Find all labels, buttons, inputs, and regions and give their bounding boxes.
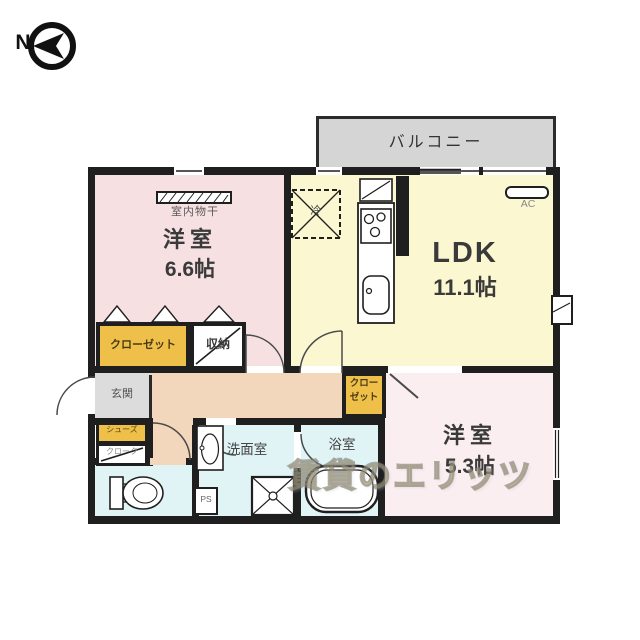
washroom-label: 洗面室 (206, 443, 288, 458)
wall (88, 516, 560, 524)
ac-label: AC (510, 199, 546, 211)
ldk-small-window-icon (551, 295, 573, 325)
entrance-label: 玄関 (96, 388, 148, 400)
bedroom2-name-label: 洋室 (395, 424, 545, 448)
closet-label: クローゼット (99, 339, 187, 351)
watermark: 賃貸のエリッツ (288, 458, 578, 494)
refrigerator-label: 冷 (306, 205, 326, 217)
closet2-label-line2: ゼット (344, 393, 384, 403)
shoes-closet-label-line1: シューズ (97, 426, 147, 435)
toilet-floor (95, 460, 193, 518)
balcony-sliding-window (420, 167, 546, 175)
entrance-step-line (149, 375, 152, 418)
ldk-doorway (300, 366, 342, 373)
ldk-name-label: LDK (380, 238, 550, 270)
bedroom2-doorway (388, 366, 462, 373)
bedroom1-window (174, 167, 204, 175)
pipe-space-label: PS (195, 495, 217, 504)
drying-pole-icon (156, 191, 232, 204)
toilet-doorway (150, 458, 186, 465)
wall (88, 167, 95, 524)
closet2-label-line1: クロー (344, 379, 384, 389)
washroom-doorway (206, 418, 236, 425)
entrance-doorway (88, 378, 95, 414)
bedroom1-size-label: 6.6帖 (105, 258, 275, 281)
bedroom1-name-label: 洋室 (105, 228, 275, 252)
compass-icon (31, 25, 73, 67)
drying-pole-label: 室内物干 (150, 206, 240, 218)
lobby-opening (153, 418, 193, 425)
balcony-label: バルコニー (318, 134, 554, 152)
bedroom1-doorway (246, 366, 284, 373)
bathroom-label: 浴室 (312, 438, 372, 453)
ldk-size-label: 11.1帖 (380, 276, 550, 300)
kitchen-window (316, 167, 342, 175)
floor-plan: バルコニー (0, 0, 640, 640)
wall (284, 167, 291, 373)
north-label: N (10, 31, 36, 54)
shoes-closet-label-line2: クローク (97, 448, 147, 457)
storage-label: 収納 (192, 338, 244, 351)
